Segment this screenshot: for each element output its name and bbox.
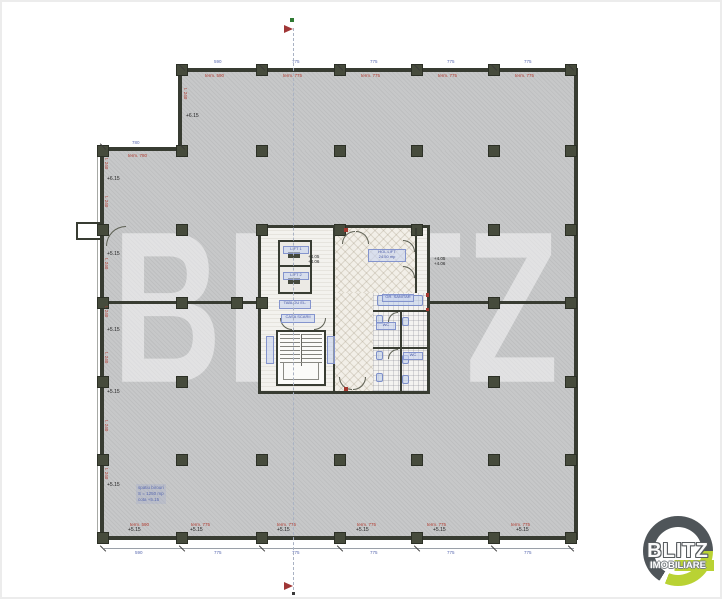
survey-flag-top [284,25,293,33]
elevation-label: +5.15 [356,528,369,534]
column [231,297,243,309]
column [411,224,423,236]
column [565,454,577,466]
room-label-chip: LIFT 2 [283,272,309,280]
survey-flag-top-green [290,18,294,22]
hall-level-label: +4.05 +4.06 [434,256,445,266]
dimension-label-blue: 590 [135,550,143,555]
stair-landing [283,362,319,380]
dimension-label-red: t. 240 [104,468,109,479]
dimension-label-red: t. 240 [104,158,109,169]
elevation-label: +5.15 [433,528,446,534]
elevation-label: +5.15 [107,328,120,334]
column [176,532,188,544]
column [256,145,268,157]
dimension-label-red: term. 590 [130,522,149,527]
column [176,297,188,309]
dimension-label-red: t. 240 [104,352,109,363]
column [488,145,500,157]
elevation-label: +5.15 [190,528,203,534]
floor-plan-image: BLITZ [0,0,722,599]
column [565,376,577,388]
red-marker [426,308,429,311]
red-marker [344,228,348,232]
dimension-label-red: term. 775 [361,73,380,78]
elevation-label: +5.15 [128,528,141,534]
core-divider-wall [333,225,335,394]
elevation-label: +6.15 [107,177,120,183]
column [411,532,423,544]
room-label-chip: CASA SCARII [281,314,315,323]
dimension-label-red: term. 775 [357,522,376,527]
column [97,376,109,388]
elevation-label: +5.15 [277,528,290,534]
column [256,297,268,309]
dimension-label-red: t. 240 [183,88,188,99]
column [256,454,268,466]
survey-point-bottom [292,592,295,595]
column [488,376,500,388]
wall-step-vertical [178,68,182,151]
room-label-chip: LIFT 1 [283,246,309,254]
dimension-label-red: term. 775 [515,73,534,78]
column [256,532,268,544]
column [334,532,346,544]
dimension-label-blue: 780 [132,140,140,145]
wall-step-horizontal [100,147,186,151]
column [488,532,500,544]
column [488,297,500,309]
dimension-label-blue: 775 [370,59,378,64]
column [97,224,109,236]
dimension-label-red: t. 240 [104,306,109,317]
partition-right [430,301,574,304]
toilet-fixture [376,351,383,360]
elevation-label: +5.15 [107,252,120,258]
dimension-label-red: term. 775 [438,73,457,78]
column [488,224,500,236]
elevation-label: +5.15 [107,483,120,489]
dimension-label-blue: 775 [447,59,455,64]
dimension-label-blue: 775 [370,550,378,555]
floor-upper-wing [182,72,574,151]
column [565,532,577,544]
dimension-label-blue: 775 [524,550,532,555]
elevation-label: +6.15 [186,114,199,120]
room-label-chip: GR. SANITAR [382,294,414,302]
column [176,454,188,466]
column [334,454,346,466]
toilet-fixture [376,373,383,382]
dimension-label-red: t. 240 [104,196,109,207]
elevation-label: +5.15 [107,390,120,396]
column [411,454,423,466]
room-label-chip [327,336,335,364]
column [97,454,109,466]
core-rooms-right-wall [415,228,417,293]
red-marker [426,293,429,297]
dimension-label-red: term. 780 [128,153,147,158]
logo-subtitle: IMOBILIARE [642,560,714,571]
dimension-label-blue: 775 [214,550,222,555]
hall-level-label: +4.05 +4.06 [308,254,319,264]
dimension-label-red: term. 775 [191,522,210,527]
column [565,224,577,236]
survey-flag-bottom [284,582,293,590]
room-label-chip: HOL LIFT 24.50 mp [368,249,406,262]
dimension-label-blue: 590 [214,59,222,64]
column [256,224,268,236]
elevation-label: +5.15 [516,528,529,534]
dimension-label-blue: 775 [447,550,455,555]
column [565,145,577,157]
column [411,145,423,157]
room-label-chip: WC [403,352,423,360]
room-label-chip: WC [376,322,396,330]
toilet-fixture [402,317,409,326]
wall-left-outer-line [97,147,98,540]
office-area-note: spatiu birouri S = 1250 mp cota +5.15 [136,484,166,504]
column [176,376,188,388]
dimension-label-red: term. 775 [427,522,446,527]
dimension-label-red: t. 240 [104,258,109,269]
column [97,532,109,544]
room-label-chip: TABLOU EL. [279,300,311,309]
blitz-imobiliare-logo: BLITZ IMOBILIARE [636,514,720,598]
room-label-chip [266,336,274,364]
column [488,454,500,466]
dimension-label-red: term. 590 [205,73,224,78]
red-marker [344,387,348,391]
wall-top [178,68,578,72]
dimension-label-blue: 775 [524,59,532,64]
dimension-label-red: term. 775 [511,522,530,527]
column [176,224,188,236]
toilet-fixture [402,375,409,384]
survey-centerline [293,28,294,590]
column [565,297,577,309]
column [334,145,346,157]
dimension-label-red: t. 240 [104,420,109,431]
